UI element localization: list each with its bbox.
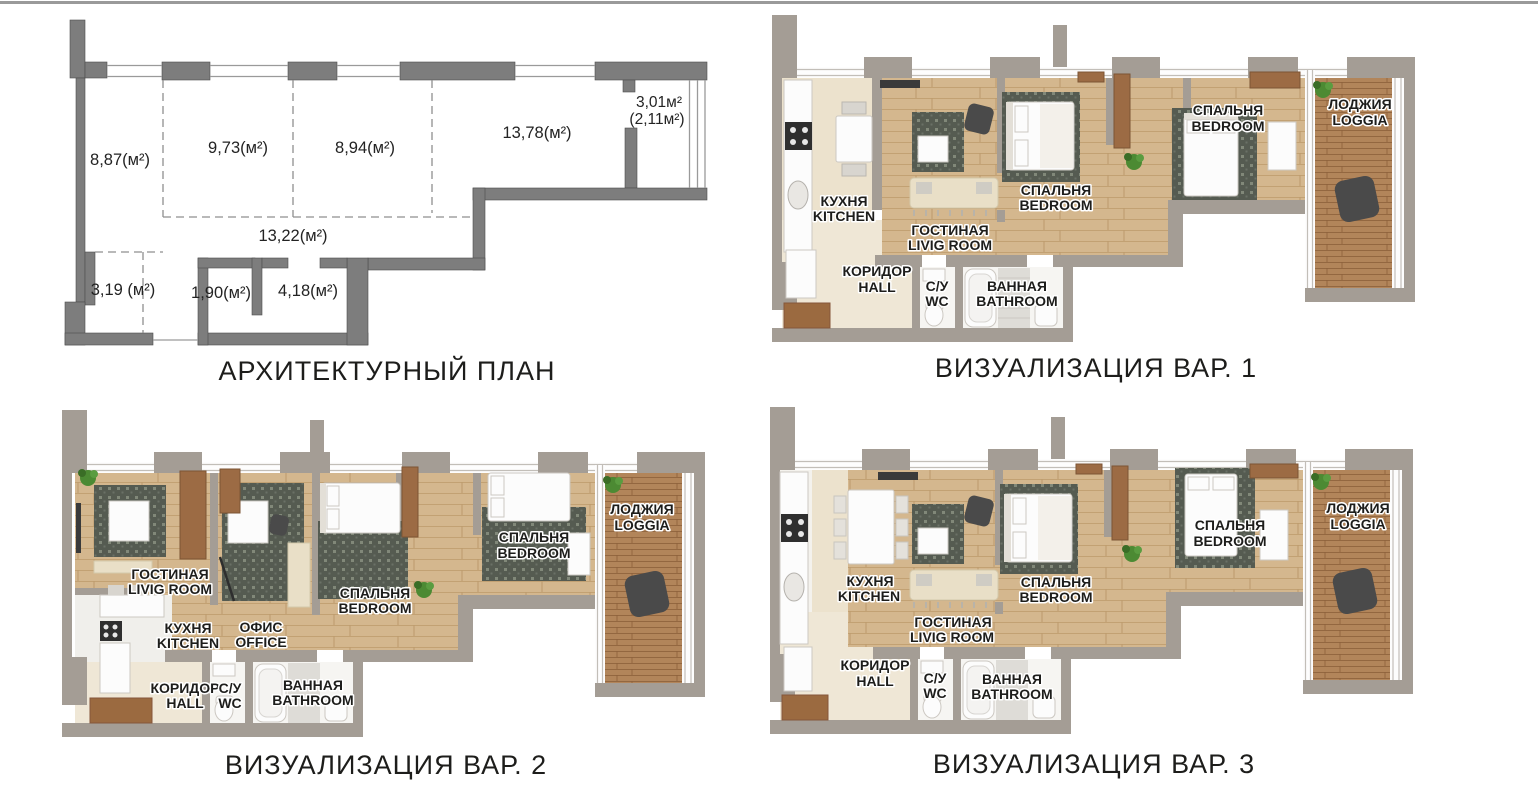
kitchen-counter — [100, 643, 130, 693]
visualization-3-caption: ВИЗУАЛИЗАЦИЯ ВАР. 3 — [770, 749, 1418, 780]
architectural-plan-panel: 8,87(м²) 9,73(м²) 8,94(м²) 13,78(м²) 3,0… — [62, 15, 712, 352]
pillow — [327, 486, 339, 506]
coffee-table — [918, 136, 948, 162]
label-living-en: LIVIG ROOM — [908, 237, 992, 253]
label-bedroom2-ru: СПАЛЬНЯ — [1195, 517, 1266, 533]
label-bedroom2-ru: СПАЛЬНЯ — [499, 529, 570, 545]
label-bath-en: BATHROOM — [971, 686, 1052, 702]
label-office-en: OFFICE — [235, 634, 286, 650]
label-bedroom1-ru: СПАЛЬНЯ — [1021, 574, 1092, 590]
label-bath-en: BATHROOM — [976, 293, 1057, 309]
label-bedroom1-ru: СПАЛЬНЯ — [1021, 182, 1092, 198]
architectural-plan-drawing: 8,87(м²) 9,73(м²) 8,94(м²) 13,78(м²) 3,0… — [62, 15, 712, 352]
pillow — [1213, 477, 1234, 490]
wc-cistern — [213, 664, 235, 676]
wardrobe — [402, 467, 418, 537]
visualization-3-drawing: КУХНЯ KITCHEN ГОСТИНАЯ LIVIG ROOM СПАЛЬН… — [770, 402, 1418, 743]
visualization-3-panel: КУХНЯ KITCHEN ГОСТИНАЯ LIVIG ROOM СПАЛЬН… — [770, 402, 1418, 743]
label-bath-ru: ВАННАЯ — [987, 278, 1047, 294]
label-hall-en: HALL — [858, 279, 896, 295]
tv — [878, 472, 918, 480]
label-bedroom2-ru: СПАЛЬНЯ — [1193, 102, 1264, 118]
label-living-ru: ГОСТИНАЯ — [914, 614, 991, 630]
plan-caption: АРХИТЕКТУРНЫЙ ПЛАН — [62, 356, 712, 387]
sofa-pillow — [976, 574, 992, 586]
bed-blanket — [1040, 104, 1073, 168]
label-loggia-en: LOGGIA — [1332, 112, 1387, 128]
sofa-pillow — [916, 182, 932, 194]
visualization-2-caption: ВИЗУАЛИЗАЦИЯ ВАР. 2 — [62, 750, 710, 781]
kitchen-table — [836, 116, 872, 162]
label-living-en: LIVIG ROOM — [128, 581, 212, 597]
pillow — [1188, 477, 1209, 490]
kitchen-sink — [788, 181, 808, 209]
bed-headboard — [320, 483, 326, 533]
hall-cabinet — [784, 647, 812, 691]
label-bedroom2-en: BEDROOM — [1191, 118, 1264, 134]
label-kitchen-en: KITCHEN — [838, 588, 900, 604]
wardrobe — [180, 471, 206, 559]
label-bedroom2-en: BEDROOM — [497, 545, 570, 561]
area-label-room4: 13,78(м²) — [502, 124, 571, 142]
cabinet — [220, 469, 240, 513]
label-loggia-ru: ЛОДЖИЯ — [1328, 96, 1391, 112]
label-kitchen-en: KITCHEN — [157, 635, 219, 651]
label-hall-ru: КОРИДОР — [842, 263, 911, 279]
label-living-en: LIVIG ROOM — [910, 629, 994, 645]
area-label-room1: 8,87(м²) — [90, 151, 150, 169]
bed-blanket — [1038, 496, 1071, 560]
label-wc-ru: С/У — [924, 670, 947, 686]
visualization-1-caption: ВИЗУАЛИЗАЦИЯ ВАР. 1 — [772, 353, 1420, 384]
top-divider-line — [0, 1, 1538, 4]
label-wc-en: WC — [218, 695, 241, 711]
dresser — [1268, 122, 1296, 170]
visualization-1-panel: КУХНЯ KITCHEN ГОСТИНАЯ LIVIG ROOM СПАЛЬН… — [772, 10, 1420, 351]
pillow — [1013, 532, 1026, 558]
label-wc-en: WC — [923, 685, 946, 701]
pillow — [491, 476, 504, 495]
stove — [781, 514, 808, 542]
label-hall-ru: КОРИДОР — [840, 657, 909, 673]
label-kitchen-ru: КУХНЯ — [846, 573, 893, 589]
label-loggia-en: LOGGIA — [1330, 516, 1385, 532]
wardrobe — [1250, 72, 1300, 88]
area-label-balcony-2: (2,11м²) — [629, 111, 684, 128]
visualization-2-panel: ГОСТИНАЯ LIVIG ROOM КУХНЯ KITCHEN ОФИС O… — [62, 405, 710, 746]
wardrobe — [1114, 74, 1130, 148]
kitchen-counter — [780, 472, 808, 644]
pillow — [1015, 140, 1028, 166]
label-office-ru: ОФИС — [239, 619, 282, 635]
dresser — [568, 533, 590, 575]
floor-plan-sheet: 8,87(м²) 9,73(м²) 8,94(м²) 13,78(м²) 3,0… — [0, 0, 1538, 798]
kitchen-counter — [784, 80, 812, 252]
tv — [76, 503, 81, 553]
area-label-balcony-1: 3,01м² — [636, 94, 682, 111]
visualization-2-drawing: ГОСТИНАЯ LIVIG ROOM КУХНЯ KITCHEN ОФИС O… — [62, 405, 710, 746]
sofa-pillow — [976, 182, 992, 194]
kitchen-island — [100, 595, 164, 617]
label-bath-en: BATHROOM — [272, 692, 353, 708]
dining-table — [848, 490, 894, 564]
label-bedroom1-en: BEDROOM — [1019, 589, 1092, 605]
chair — [108, 585, 124, 595]
coffee-table — [109, 501, 149, 541]
label-living-ru: ГОСТИНАЯ — [131, 566, 208, 582]
label-bath-ru: ВАННАЯ — [283, 677, 343, 693]
plan-walls — [65, 20, 707, 345]
label-loggia-en: LOGGIA — [614, 517, 669, 533]
label-bedroom1-en: BEDROOM — [1019, 197, 1092, 213]
area-label-bath: 4,18(м²) — [278, 282, 338, 300]
chair — [842, 102, 866, 114]
tv — [880, 80, 920, 88]
kitchen-sink — [784, 573, 804, 601]
label-wc-ru: С/У — [219, 680, 242, 696]
shelf — [1076, 464, 1102, 474]
shelf — [1078, 72, 1104, 82]
pillow — [327, 509, 339, 529]
label-hall-ru: КОРИДОР — [150, 680, 219, 696]
label-kitchen-en: KITCHEN — [813, 208, 875, 224]
wardrobe — [1112, 466, 1128, 540]
label-kitchen-ru: КУХНЯ — [164, 620, 211, 636]
visualization-1-drawing: КУХНЯ KITCHEN ГОСТИНАЯ LIVIG ROOM СПАЛЬН… — [772, 10, 1420, 351]
stove — [100, 621, 122, 641]
sofa-pillow — [916, 574, 932, 586]
doormat — [90, 698, 152, 723]
chair — [842, 164, 866, 176]
area-label-room3: 8,94(м²) — [335, 139, 395, 157]
label-bedroom2-en: BEDROOM — [1193, 533, 1266, 549]
pillow — [1013, 498, 1026, 524]
wardrobe — [1250, 464, 1298, 478]
area-label-room5: 3,19 (м²) — [91, 281, 156, 299]
hall-cabinet — [786, 250, 816, 298]
pillow — [491, 498, 504, 517]
label-bedroom1-ru: СПАЛЬНЯ — [340, 585, 411, 601]
label-wc-ru: С/У — [926, 278, 949, 294]
label-wc-en: WC — [925, 293, 948, 309]
stove — [785, 122, 812, 150]
area-label-corridor: 13,22(м²) — [258, 227, 327, 245]
doormat — [784, 303, 830, 328]
label-loggia-ru: ЛОДЖИЯ — [1326, 500, 1389, 516]
daybed — [288, 543, 310, 607]
bed-headboard — [1006, 102, 1013, 170]
coffee-table — [918, 528, 948, 554]
area-label-room2: 9,73(м²) — [208, 139, 268, 157]
label-hall-en: HALL — [166, 695, 204, 711]
area-label-wc: 1,90(м²) — [191, 284, 251, 302]
label-bedroom1-en: BEDROOM — [338, 600, 411, 616]
doormat — [782, 695, 828, 720]
label-kitchen-ru: КУХНЯ — [820, 193, 867, 209]
bed-headboard — [1004, 494, 1011, 562]
label-hall-en: HALL — [856, 673, 894, 689]
pillow — [1015, 106, 1028, 132]
label-living-ru: ГОСТИНАЯ — [911, 222, 988, 238]
label-bath-ru: ВАННАЯ — [982, 671, 1042, 687]
label-loggia-ru: ЛОДЖИЯ — [610, 501, 673, 517]
